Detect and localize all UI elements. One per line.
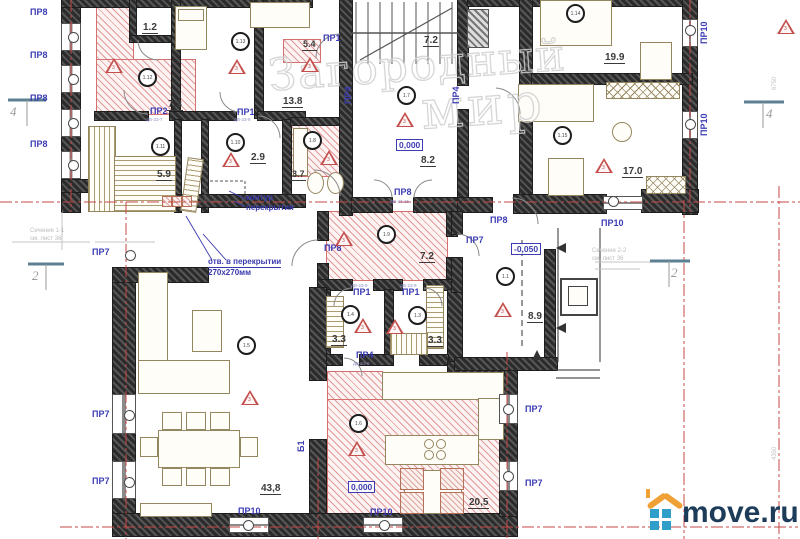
door-label-pr10-2: ПР10: [238, 507, 260, 516]
room-marker-1-1: 1.1: [496, 267, 515, 286]
area-7-2-hall: 7.2: [419, 251, 435, 263]
floor-plan: Загородный мир ПР8 ПР8 ПР8 ПР8 ПР2 ПР1 П…: [0, 0, 800, 539]
door-label-pr8-4: ПР8: [30, 140, 47, 149]
door-code: ДВ-23-9: [400, 283, 417, 288]
axis-number-left-4: 4: [10, 104, 17, 120]
dimension-right-top: 6750: [772, 77, 778, 90]
window-mark: [68, 32, 79, 43]
elevation-0000-kitchen: 0,000: [348, 481, 375, 493]
room-marker-1-15: 1.15: [553, 126, 572, 145]
area-3-7: 3.7: [291, 170, 306, 181]
area-3-3-b: 3.3: [427, 335, 443, 347]
axis-number-right-2: 2: [671, 265, 678, 281]
door-label-pr7-4: ПР7: [92, 477, 109, 486]
window-mark: [685, 25, 696, 36]
floor-triangle: 3: [595, 158, 613, 173]
door-label-pr4-v1: ПР4: [344, 87, 353, 104]
elevation-minus-0050: -0,050: [511, 243, 541, 255]
window-mark: [68, 160, 79, 171]
window-mark: [124, 410, 135, 421]
room-marker-1-5: 1.5: [237, 336, 256, 355]
door-code: ДВ-23-9: [351, 283, 368, 288]
door-code: ДВ-23-15: [390, 199, 409, 204]
house-icon: [662, 509, 671, 518]
room-marker-1-6: 1.6: [349, 414, 368, 433]
beam-label-b1: Б1: [297, 441, 306, 452]
window-mark: [125, 250, 136, 261]
house-icon: [662, 521, 671, 530]
window-mark: [608, 196, 619, 207]
annotation-line: 270х270мм: [208, 268, 281, 278]
floor-triangle: 3: [335, 231, 353, 246]
door-label-pr1-2: ПР1: [323, 34, 340, 43]
area-2-9: 2.9: [250, 152, 266, 164]
room-marker-1-14: 1.14: [566, 4, 585, 23]
annotation-slab-contour: контур перекрытия: [246, 193, 294, 213]
door-label-pr10-1: ПР10: [601, 219, 623, 228]
floor-triangle: 3: [396, 112, 414, 127]
door-label-pr7-6: ПР7: [525, 479, 542, 488]
window-mark: [243, 520, 254, 531]
door-label-pr8-2: ПР8: [30, 51, 47, 60]
door-label-pr7-5: ПР7: [525, 405, 542, 414]
area-17-0: 17.0: [622, 166, 643, 178]
door-label-pr7-2: ПР7: [92, 248, 109, 257]
door-code: ДВ-23-9: [353, 361, 370, 366]
door-code: ДВ-23-7: [146, 117, 163, 122]
house-icon: [650, 521, 659, 530]
house-icon: [662, 492, 683, 510]
room-marker-1-7: 1.7: [397, 86, 416, 105]
area-7-3: 7.3: [167, 99, 183, 111]
room-marker-1-10: 1.10: [226, 133, 245, 152]
door-label-pr8-1: ПР8: [30, 8, 47, 17]
house-icon: [646, 489, 650, 498]
room-marker-1-12: 1.12: [138, 68, 157, 87]
area-43-8: 43,8: [260, 483, 281, 495]
floor-triangle: 3: [105, 58, 123, 73]
house-icon: [650, 509, 659, 518]
door-label-pr2: ПР2: [150, 107, 167, 116]
floor-triangle: 3: [494, 302, 512, 317]
area-5-4: 5.4: [302, 40, 317, 51]
annotation-slab-opening: отв. в перекрытии 270х270мм: [208, 257, 281, 278]
door-label-pr8-5: ПР8: [394, 188, 411, 197]
area-19-9: 19.9: [604, 52, 625, 64]
annotation-line: отв. в перекрытии: [208, 257, 281, 268]
door-label-pr1-4: ПР1: [402, 288, 419, 297]
section-note-2: Сечение 2-2 см. лист 36: [592, 248, 626, 264]
axis-number-right-4: 4: [766, 106, 773, 122]
door-label-pr10-3: ПР10: [370, 508, 392, 517]
room-marker-1-3: 1.3: [408, 306, 427, 325]
area-7-2-stairs: 7.2: [423, 35, 439, 47]
area-5-9: 5.9: [156, 169, 172, 181]
floor-triangle: 3: [320, 150, 338, 165]
window-mark: [124, 477, 135, 488]
room-marker-1-13: 1.13: [231, 32, 250, 51]
window-mark: [68, 74, 79, 85]
axis-number-left-2: 2: [32, 268, 39, 284]
moveru-logo[interactable]: move.ru: [638, 484, 798, 536]
window-mark: [503, 404, 514, 415]
floor-triangle: 3: [386, 319, 404, 334]
area-1-2: 1.2: [142, 22, 158, 34]
door-label-pr8-7: ПР8: [490, 216, 507, 225]
door-label-pr1-1: ПР1: [237, 108, 254, 117]
door-label-pr10-v1: ПР10: [700, 22, 709, 44]
floor-triangle: 3: [301, 57, 319, 72]
floor-triangle: 3: [348, 441, 366, 456]
room-marker-1-11: 1.11: [151, 137, 170, 156]
elevation-0000-hall: 0,000: [396, 139, 423, 151]
room-marker-1-8: 1.8: [303, 131, 322, 150]
door-code: ДВ-23-9: [234, 117, 251, 122]
door-label-pr7-3: ПР7: [92, 410, 109, 419]
door-label-pr7-1: ПР7: [466, 236, 483, 245]
floor-triangle: 3: [354, 318, 372, 333]
moveru-logo-text: move.ru: [682, 496, 799, 530]
door-label-pr1-3: ПР1: [353, 288, 370, 297]
floor-triangle: 3: [222, 152, 240, 167]
area-20-5: 20,5: [468, 497, 489, 509]
door-label-pr8-3: ПР8: [30, 94, 47, 103]
window-mark: [379, 520, 390, 531]
dimension-right-bottom: 4350: [772, 447, 778, 460]
window-mark: [685, 119, 696, 130]
annotation-line: перекрытия: [246, 203, 294, 213]
door-label-pr4-1: ПР4: [356, 351, 373, 360]
area-8-2: 8.2: [420, 155, 436, 167]
window-mark: [503, 471, 514, 482]
annotation-line: контур: [246, 193, 294, 203]
door-label-pr4-v2: ПР4: [452, 87, 461, 104]
area-13-8: 13.8: [282, 96, 303, 108]
area-8-9: 8.9: [527, 311, 543, 323]
floor-triangle: 3: [777, 19, 795, 34]
floor-triangle: 3: [241, 390, 259, 405]
room-marker-1-9: 1.9: [377, 225, 396, 244]
window-mark: [68, 118, 79, 129]
door-label-pr10-v2: ПР10: [700, 114, 709, 136]
linework-layer: [0, 0, 800, 539]
area-3-3-a: 3.3: [331, 334, 347, 346]
section-note-1: Сечение 1-1 см. лист 36: [30, 228, 64, 244]
entry-arrow: [532, 350, 542, 360]
floor-triangle: 3: [228, 59, 246, 74]
